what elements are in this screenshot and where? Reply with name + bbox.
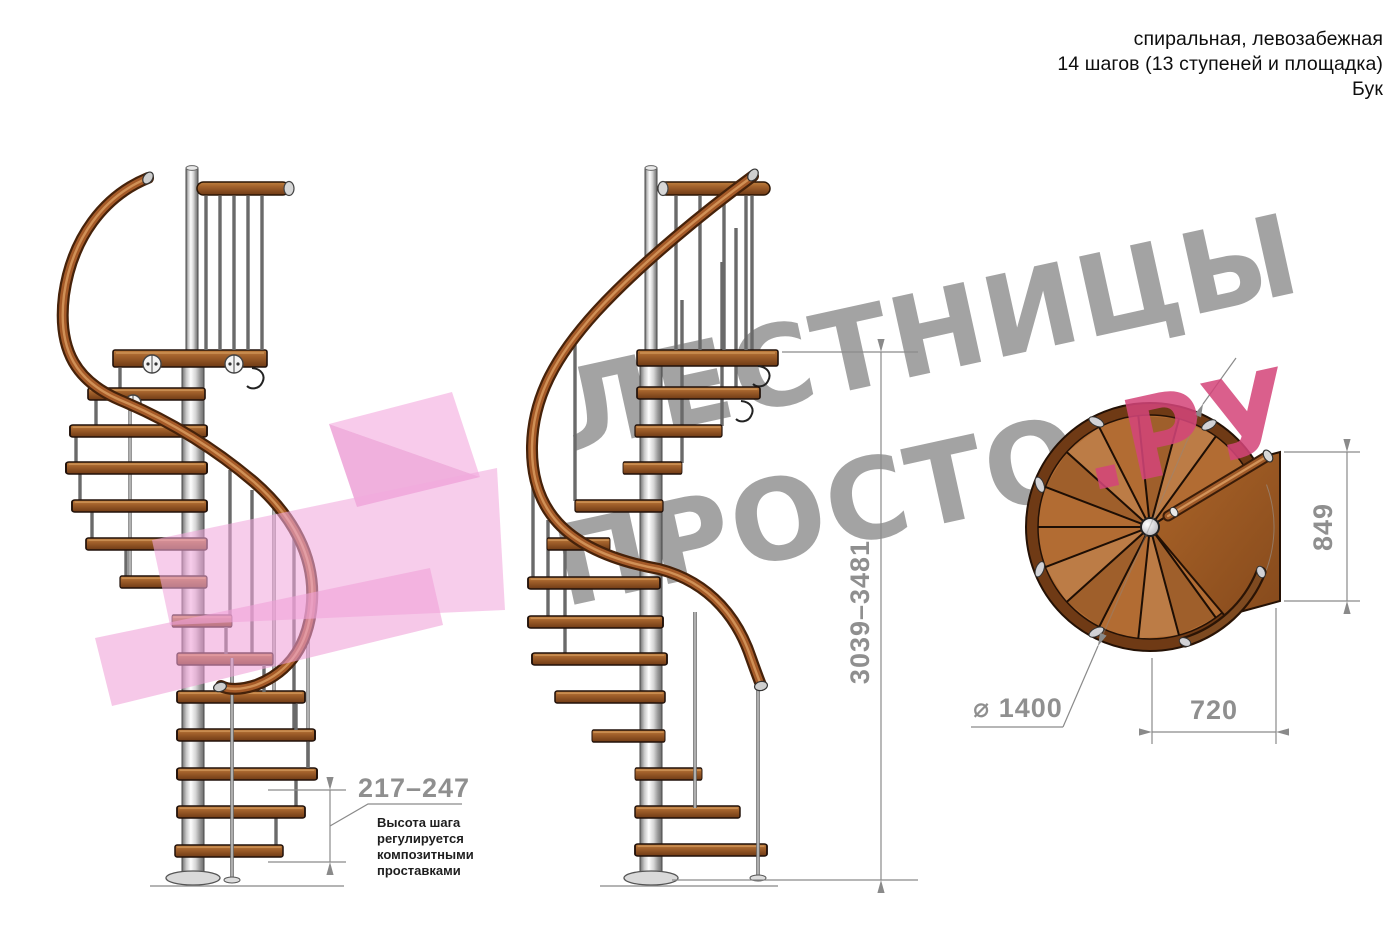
svg-text:проставками: проставками [377,863,461,878]
dim-landing-depth-label: 849 [1308,503,1338,551]
left-baluster-foot [224,877,240,883]
left-elevation-view [63,166,344,886]
product-summary: спиральная, левозабежная 14 шагов (13 ст… [1057,27,1383,102]
product-type: спиральная, левозабежная [1057,27,1383,52]
product-material: Бук [1057,77,1383,102]
svg-text:композитными: композитными [377,847,474,862]
dim-step-height-label: 217–247 [358,773,470,803]
left-top-balustrade [197,182,294,351]
left-top-rail [197,182,289,195]
dim-diameter-label: ⌀ 1400 [973,693,1063,723]
center-base-flange [624,871,678,885]
step-height-note: Высота шага регулируется композитными пр… [377,815,474,878]
dim-landing-width-label: 720 [1190,695,1238,725]
left-platform-bracket [247,368,264,388]
left-base-flange [166,871,220,885]
svg-text:регулируется: регулируется [377,831,464,846]
center-top-rail [658,182,770,195]
page-root: ЛЕСТНИЦЫПРОСТО.РУ [0,0,1400,937]
product-steps: 14 шагов (13 ступеней и площадка) [1057,52,1383,77]
svg-text:Высота шага: Высота шага [377,815,461,830]
